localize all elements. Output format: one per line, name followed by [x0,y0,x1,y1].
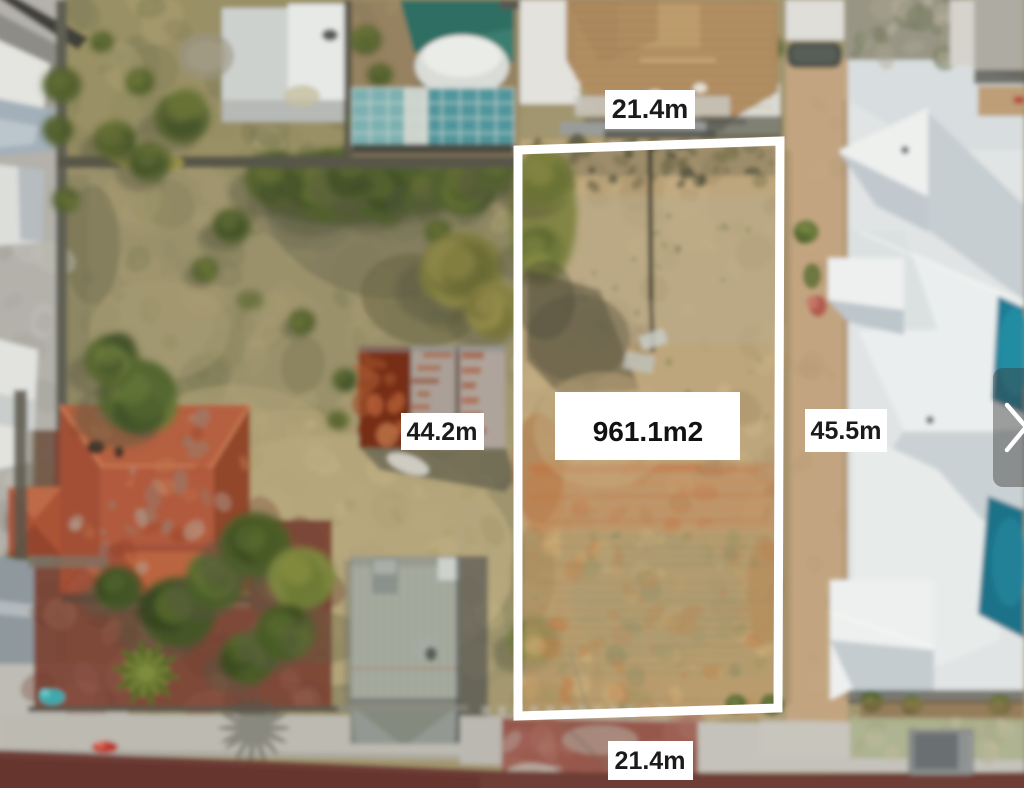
svg-text:961.1m2: 961.1m2 [593,416,704,447]
svg-text:45.5m: 45.5m [811,417,882,445]
svg-text:21.4m: 21.4m [615,747,686,775]
svg-text:21.4m: 21.4m [612,94,689,124]
svg-text:44.2m: 44.2m [407,418,478,446]
